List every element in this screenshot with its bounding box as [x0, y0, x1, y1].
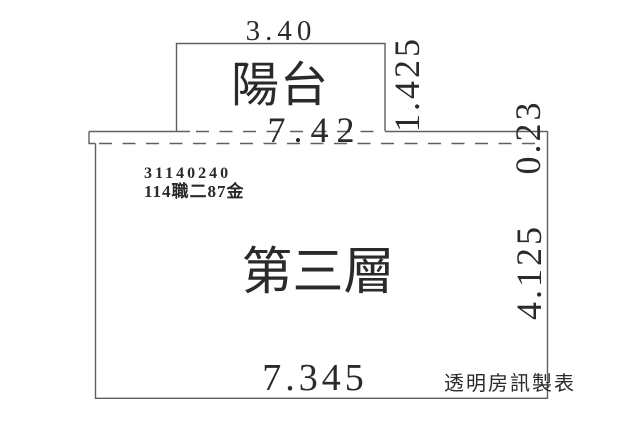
floor-plan-drawing: 3.40 陽台 7.42 1.425 0.23 31140240 114職二87…: [0, 0, 640, 444]
balcony-width-dimension: 3.40: [211, 11, 351, 51]
room-depth-dimension: 4.125: [509, 202, 549, 342]
parcel-number: 31140240: [144, 166, 231, 182]
balcony-label: 陽台: [180, 58, 380, 114]
floor-label: 第三層: [198, 244, 438, 302]
registration-note: 114職二87金: [144, 183, 245, 201]
top-width-dimension: 7.42: [235, 110, 395, 150]
room-width-dimension: 7.345: [235, 357, 395, 399]
top-left-notch: [89, 132, 96, 144]
balcony-depth-dimension: 1.425: [387, 14, 427, 154]
strip-depth-dimension: 0.23: [508, 67, 548, 207]
watermark-label: 透明房訊製表: [430, 371, 590, 397]
